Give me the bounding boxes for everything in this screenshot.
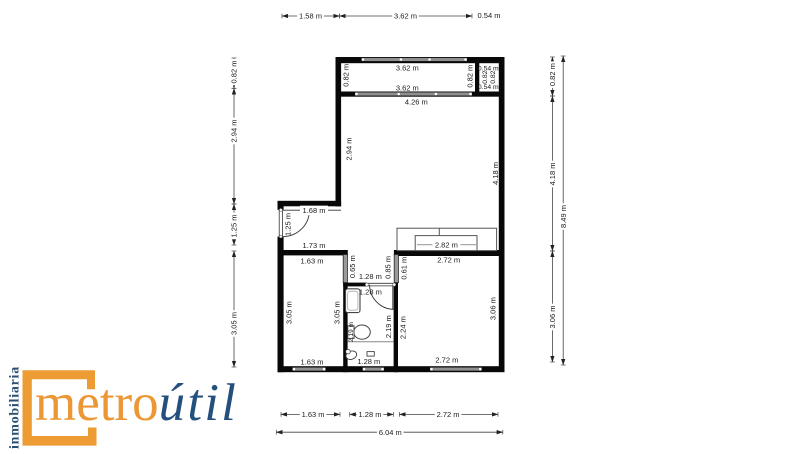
svg-text:4.18 m: 4.18 m	[548, 163, 557, 186]
svg-text:3.62 m: 3.62 m	[394, 12, 417, 21]
svg-text:metroútil: metroútil	[35, 374, 238, 432]
svg-text:0.54 m: 0.54 m	[478, 11, 501, 20]
svg-text:1.28 m: 1.28 m	[357, 357, 380, 366]
svg-text:2.94 m: 2.94 m	[230, 120, 239, 143]
svg-text:1.63 m: 1.63 m	[301, 256, 324, 265]
svg-text:4.26 m: 4.26 m	[405, 97, 428, 106]
svg-text:0.82: 0.82	[482, 70, 489, 83]
svg-text:0.85 m: 0.85 m	[384, 256, 393, 279]
svg-text:2.19 m: 2.19 m	[384, 315, 393, 338]
svg-text:0.82 m: 0.82 m	[465, 65, 474, 88]
svg-text:0.82: 0.82	[490, 70, 497, 83]
svg-text:3.06 m: 3.06 m	[488, 297, 497, 320]
svg-text:1.58 m: 1.58 m	[299, 12, 322, 21]
svg-text:1.28 m: 1.28 m	[359, 272, 382, 281]
svg-text:2.72 m: 2.72 m	[437, 256, 460, 265]
svg-text:inmobiliaria: inmobiliaria	[8, 366, 23, 449]
svg-text:1.63 m: 1.63 m	[302, 410, 325, 419]
svg-text:0.82 m: 0.82 m	[342, 64, 351, 87]
svg-text:1.28 m: 1.28 m	[359, 288, 382, 297]
svg-text:3.05 m: 3.05 m	[284, 301, 293, 324]
svg-text:3.62 m: 3.62 m	[396, 63, 419, 72]
svg-text:0.54 m: 0.54 m	[478, 84, 499, 91]
svg-text:3.05 m: 3.05 m	[230, 312, 239, 335]
svg-text:1.25 m: 1.25 m	[230, 215, 239, 238]
svg-text:6.04 m: 6.04 m	[379, 428, 402, 437]
svg-text:1.63 m: 1.63 m	[301, 357, 324, 366]
svg-text:2.94 m: 2.94 m	[345, 138, 354, 161]
svg-text:1.25 m: 1.25 m	[284, 213, 293, 236]
svg-text:2.24 m: 2.24 m	[398, 316, 407, 339]
svg-text:2.72 m: 2.72 m	[437, 410, 460, 419]
svg-text:3.62 m: 3.62 m	[396, 83, 419, 92]
svg-text:0.61 m: 0.61 m	[400, 257, 409, 280]
svg-text:1.73 m: 1.73 m	[303, 241, 326, 250]
svg-text:1.28 m: 1.28 m	[359, 410, 382, 419]
svg-text:0.82 m: 0.82 m	[548, 63, 557, 86]
svg-text:2.82 m: 2.82 m	[435, 241, 458, 250]
svg-text:8.49 m: 8.49 m	[559, 205, 568, 228]
svg-text:3.06 m: 3.06 m	[548, 306, 557, 329]
svg-text:2.19 m: 2.19 m	[348, 322, 355, 342]
svg-text:3.05 m: 3.05 m	[333, 301, 342, 324]
svg-text:1.68 m: 1.68 m	[303, 206, 326, 215]
svg-text:2.72 m: 2.72 m	[435, 356, 458, 365]
svg-text:0.65 m: 0.65 m	[348, 255, 357, 278]
svg-text:4.18 m: 4.18 m	[491, 162, 500, 185]
svg-text:0.82 m: 0.82 m	[230, 61, 239, 84]
